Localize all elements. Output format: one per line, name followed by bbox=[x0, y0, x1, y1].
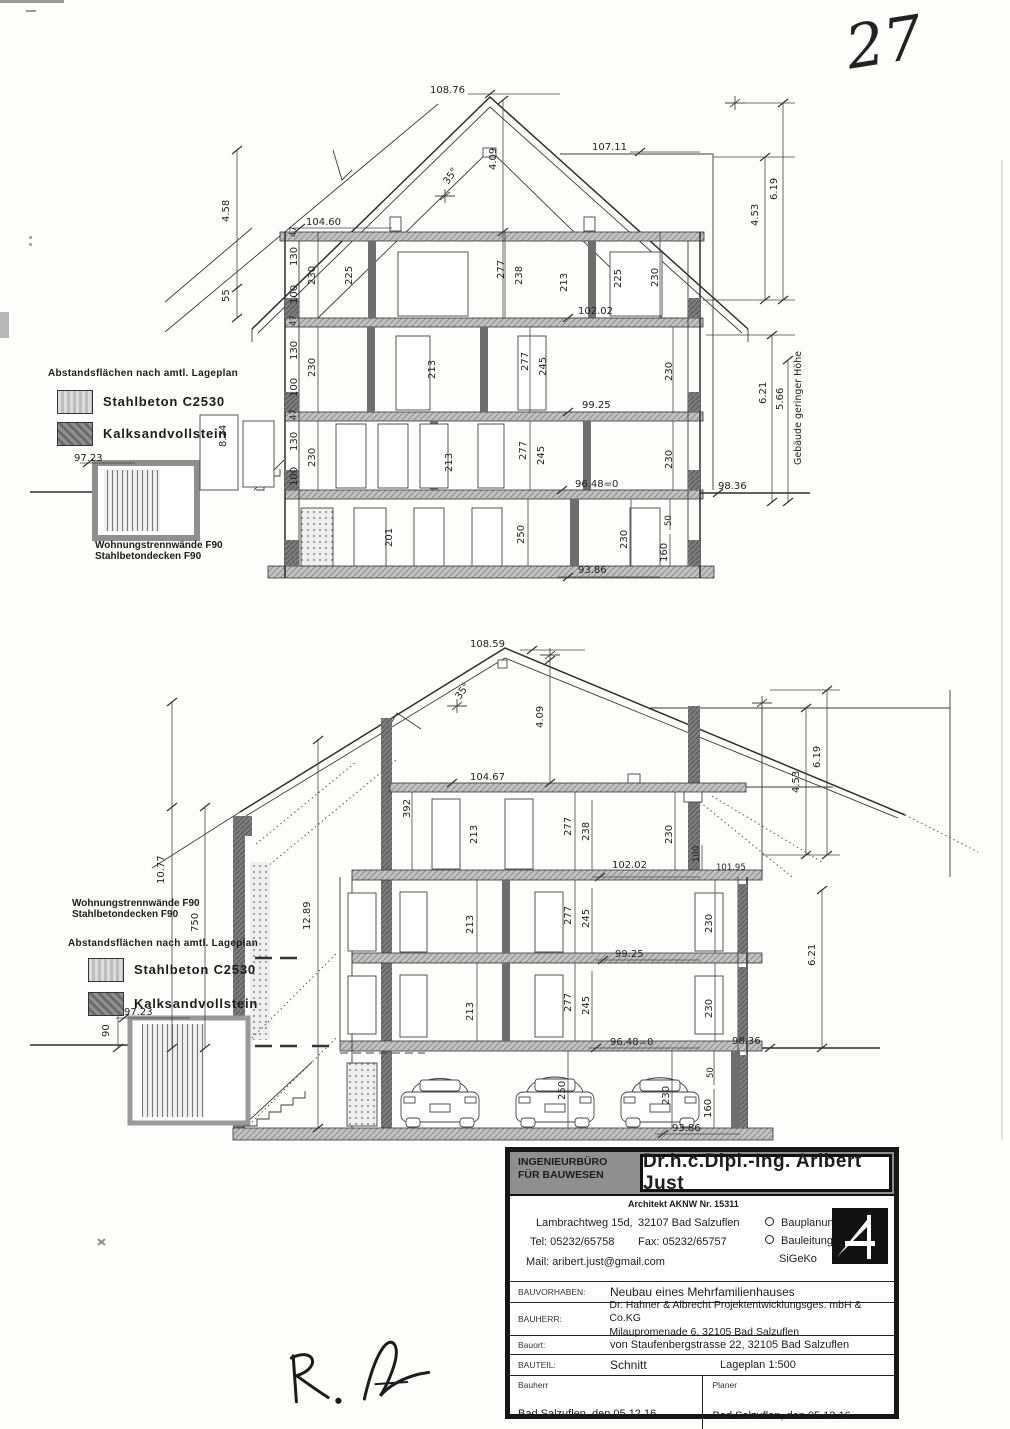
legend-top: Abstandsflächen nach amtl. Lageplan Stah… bbox=[48, 368, 278, 379]
dim-label: 230 bbox=[664, 362, 675, 381]
dim-label: 245 bbox=[536, 446, 547, 465]
title-block-header: INGENIEURBÜRO FÜR BAUWESEN Dr.h.c.Dipl.-… bbox=[510, 1152, 894, 1196]
project-value: Neubau eines Mehrfamilienhauses bbox=[610, 1285, 795, 1299]
client-line1: Dr. Hahner & Albrecht Projektentwicklung… bbox=[609, 1299, 894, 1325]
fire-note-bottom: Wohnungstrennwände F90 Stahlbetondecken … bbox=[72, 898, 200, 920]
dim-label: 47 bbox=[289, 226, 299, 237]
dim-label: 213 bbox=[465, 1002, 476, 1021]
fire-note-line2: Stahlbetondecken F90 bbox=[72, 909, 200, 920]
level-label: 93.86 bbox=[578, 565, 607, 576]
section1-drawing: 108.76 107.11 35° 4.09 104.60 102.02 99.… bbox=[30, 85, 810, 581]
bullet-icon bbox=[765, 1235, 774, 1244]
dim-label: 250 bbox=[557, 1081, 568, 1100]
services: Bauplanung Bauleitung SiGeKo bbox=[765, 1214, 840, 1268]
dim-label: 100 bbox=[289, 285, 300, 304]
dim-label: 213 bbox=[465, 915, 476, 934]
owner-date: Bad Salzuflen, den 05.12.16 bbox=[518, 1408, 656, 1420]
dim-label: 230 bbox=[704, 914, 715, 933]
level-label: 98.36 bbox=[718, 481, 747, 492]
dim-label: 230 bbox=[307, 266, 318, 285]
dim-label: 230 bbox=[664, 825, 675, 844]
part-value: Schnitt bbox=[610, 1358, 720, 1372]
fire-note-line1: Wohnungstrennwände F90 bbox=[95, 540, 223, 551]
engineer-name: Dr.h.c.Dipl.-Ing. Aribert Just bbox=[640, 1154, 892, 1192]
dim-label: 277 bbox=[563, 817, 574, 836]
dim-label: 10.77 bbox=[156, 855, 167, 884]
dim-label: 238 bbox=[581, 822, 592, 841]
dim-label: 50 bbox=[706, 1067, 716, 1078]
section2-drawing: 108.59 35° 4.09 104.67 102.02 101.95 99.… bbox=[30, 639, 978, 1140]
dim-label: 47 bbox=[289, 315, 299, 326]
dim-label: 277 bbox=[518, 441, 529, 460]
registration: Architekt AKNW Nr. 15311 bbox=[628, 1199, 739, 1209]
dim-label: 230 bbox=[704, 999, 715, 1018]
bullet-icon bbox=[765, 1217, 774, 1226]
legend-areas-note: Abstandsflächen nach amtl. Lageplan bbox=[68, 938, 298, 949]
dim-label: 213 bbox=[444, 453, 455, 472]
dim-label: 238 bbox=[514, 266, 525, 285]
legend-areas-note: Abstandsflächen nach amtl. Lageplan bbox=[48, 368, 278, 379]
company-logo-icon bbox=[831, 1207, 889, 1268]
level-label: 102.02 bbox=[612, 860, 647, 871]
dim-label: 230 bbox=[307, 358, 318, 377]
dim-label: 108.76 bbox=[430, 85, 465, 96]
client-row: BAUHERR: Dr. Hahner & Albrecht Projekten… bbox=[510, 1303, 894, 1336]
project-label: BAUVORHABEN: bbox=[510, 1287, 610, 1297]
dim-label: 225 bbox=[344, 266, 355, 285]
dim-label: 100 bbox=[692, 846, 702, 862]
dim-label: 230 bbox=[664, 450, 675, 469]
address-street: Lambrachtweg 15d, bbox=[536, 1217, 633, 1229]
dim-label: 4.53 bbox=[791, 771, 802, 793]
level-label: 104.67 bbox=[470, 772, 505, 783]
level-label: 96.48=0 bbox=[610, 1037, 653, 1048]
dim-label: 55 bbox=[221, 289, 232, 302]
legend-brick-label: Kalksandvollstein bbox=[134, 996, 258, 1011]
fire-note-line2: Stahlbetondecken F90 bbox=[95, 551, 223, 562]
dim-label: 130 bbox=[289, 247, 300, 266]
dim-label: 230 bbox=[661, 1086, 672, 1105]
dim-label: 277 bbox=[496, 260, 507, 279]
part-row: BAUTEIL: Schnitt Lageplan 1:500 bbox=[510, 1355, 894, 1376]
dim-label: 130 bbox=[289, 341, 300, 360]
planner-label: Planer bbox=[713, 1380, 738, 1390]
level-label: 97.23 bbox=[74, 453, 103, 464]
dim-label: 230 bbox=[619, 530, 630, 549]
legend-concrete-label: Stahlbeton C2530 bbox=[103, 394, 225, 409]
fire-note-top: Wohnungstrennwände F90 Stahlbetondecken … bbox=[95, 540, 223, 562]
level-label: 101.95 bbox=[716, 863, 746, 873]
car-icon bbox=[401, 1079, 479, 1128]
contact-row: Architekt AKNW Nr. 15311 Lambrachtweg 15… bbox=[510, 1196, 894, 1282]
dim-label: 277 bbox=[520, 352, 531, 371]
dim-label: 225 bbox=[613, 269, 624, 288]
dim-label: 50 bbox=[664, 515, 674, 526]
dim-label: 213 bbox=[469, 825, 480, 844]
title-block: INGENIEURBÜRO FÜR BAUWESEN Dr.h.c.Dipl.-… bbox=[505, 1147, 899, 1419]
site-row: Bauort: von Staufenbergstrasse 22, 32105… bbox=[510, 1336, 894, 1355]
dim-label: 6.19 bbox=[769, 178, 780, 200]
dim-label: 35° bbox=[453, 681, 472, 702]
dim-label: 107.11 bbox=[592, 142, 627, 153]
dim-label: 4.09 bbox=[488, 148, 499, 170]
dim-label: 201 bbox=[384, 528, 395, 547]
office-line1: INGENIEURBÜRO bbox=[518, 1156, 636, 1169]
office-name: INGENIEURBÜRO FÜR BAUWESEN bbox=[510, 1152, 636, 1194]
dim-label: 4.09 bbox=[535, 706, 546, 728]
dim-label: 108.59 bbox=[470, 639, 505, 650]
level-label: 104.60 bbox=[306, 217, 341, 228]
dim-label: 160 bbox=[659, 543, 670, 562]
dim-label: 4.53 bbox=[750, 204, 761, 226]
note-label: Gebäude geringer Höhe bbox=[793, 351, 804, 465]
dim-label: 6.21 bbox=[807, 944, 818, 966]
car-icon bbox=[621, 1078, 699, 1127]
owner-label: Bauherr bbox=[518, 1380, 548, 1390]
scanned-drawing-page: 27 bbox=[0, 0, 1010, 1429]
site-label: Bauort: bbox=[510, 1340, 610, 1350]
dim-label: 277 bbox=[563, 906, 574, 925]
dim-label: 6.19 bbox=[812, 746, 823, 768]
legend-brick-label: Kalksandvollstein bbox=[103, 426, 227, 441]
office-line2: FÜR BAUWESEN bbox=[518, 1169, 636, 1182]
brick-swatch bbox=[57, 422, 93, 446]
level-label: 93.86 bbox=[672, 1123, 701, 1134]
fax: Fax: 05232/65757 bbox=[638, 1236, 727, 1248]
planner-date: Bad Salzuflen, den 05.12.16 bbox=[713, 1410, 851, 1422]
dim-label: 4.58 bbox=[221, 200, 232, 222]
dim-label: 245 bbox=[538, 357, 549, 376]
dim-label: 35° bbox=[441, 166, 460, 187]
car-icon bbox=[516, 1077, 594, 1127]
legend-concrete-label: Stahlbeton C2530 bbox=[134, 962, 256, 977]
dim-label: 47 bbox=[289, 409, 299, 420]
dim-label: 12.89 bbox=[302, 901, 313, 930]
dim-label: 213 bbox=[559, 273, 570, 292]
dim-label: 277 bbox=[563, 993, 574, 1012]
dim-label: 250 bbox=[516, 525, 527, 544]
dim-label: 130 bbox=[289, 432, 300, 451]
concrete-swatch bbox=[88, 958, 124, 982]
level-label: 99.25 bbox=[615, 949, 644, 960]
dim-label: 5.66 bbox=[775, 388, 786, 410]
dim-label: 6.21 bbox=[758, 382, 769, 404]
dim-label: 230 bbox=[307, 448, 318, 467]
dim-label: 230 bbox=[650, 268, 661, 287]
address-city: 32107 Bad Salzuflen bbox=[638, 1217, 740, 1229]
signature-row: Bauherr Bad Salzuflen, den 05.12.16 Plan… bbox=[510, 1376, 894, 1429]
level-label: 99.25 bbox=[582, 400, 611, 411]
client-label: BAUHERR: bbox=[510, 1314, 609, 1324]
dim-label: 392 bbox=[402, 799, 413, 818]
dim-label: 160 bbox=[703, 1099, 714, 1118]
phone: Tel: 05232/65758 bbox=[530, 1236, 614, 1248]
dim-label: 100 bbox=[289, 378, 300, 397]
service-2: Bauleitung bbox=[781, 1235, 833, 1247]
concrete-swatch bbox=[57, 390, 93, 414]
siteplan-scale: Lageplan 1:500 bbox=[720, 1359, 796, 1371]
dim-label: 100 bbox=[289, 467, 300, 486]
dim-label: 213 bbox=[427, 360, 438, 379]
level-label: 96.48=0 bbox=[575, 479, 618, 490]
site-value: von Staufenbergstrasse 22, 32105 Bad Sal… bbox=[610, 1339, 849, 1351]
service-3: SiGeKo bbox=[765, 1250, 840, 1268]
fire-note-line1: Wohnungstrennwände F90 bbox=[72, 898, 200, 909]
brick-swatch bbox=[88, 992, 124, 1016]
level-label: 102.02 bbox=[578, 306, 613, 317]
level-label: 98.36 bbox=[732, 1036, 761, 1047]
email: Mail: aribert.just@gmail.com bbox=[526, 1256, 665, 1268]
handwritten-signature: R. bbox=[275, 1309, 452, 1421]
dim-label: 245 bbox=[581, 909, 592, 928]
dim-label: 90 bbox=[101, 1024, 112, 1037]
dim-label: 245 bbox=[581, 996, 592, 1015]
part-label: BAUTEIL: bbox=[510, 1360, 610, 1370]
legend-bottom: Abstandsflächen nach amtl. Lageplan Stah… bbox=[68, 938, 298, 949]
